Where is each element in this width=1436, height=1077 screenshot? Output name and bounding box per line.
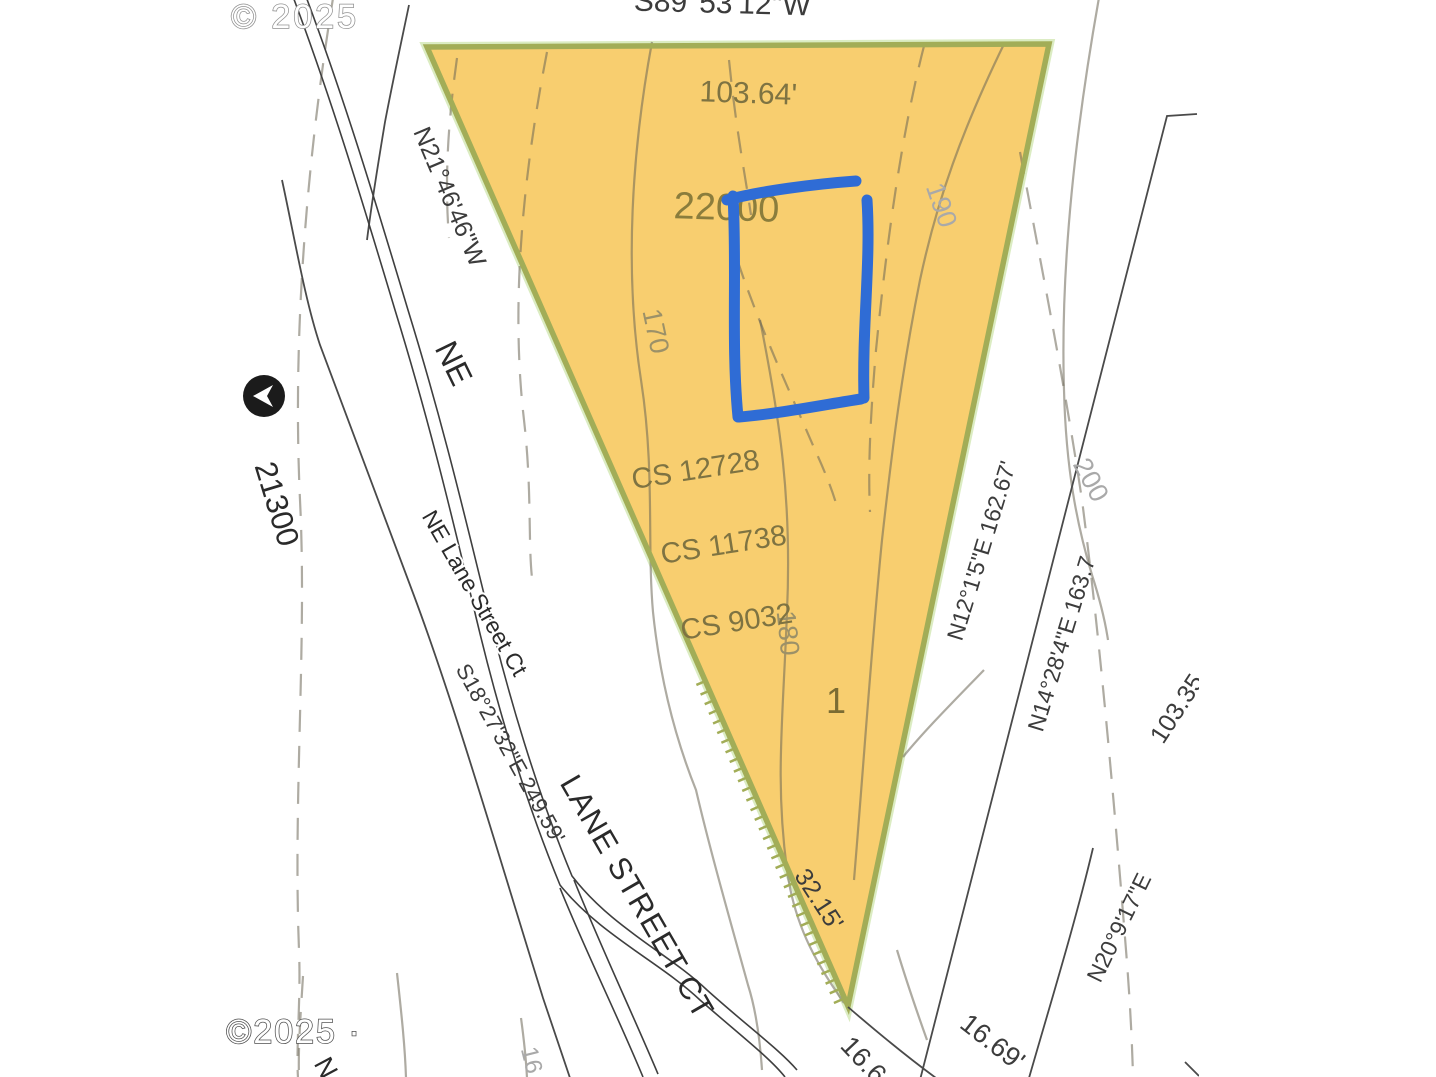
map-canvas[interactable]: S89°53'12"W 103.64' 22000 190 170 180 20… [0, 0, 1436, 1077]
nw-lot-line [367, 5, 409, 240]
copyright-watermark-bottom: ©2025 · [226, 1013, 361, 1051]
corner-tick-line [1185, 1062, 1199, 1076]
dimension-label-16-69: 16.69' [955, 1008, 1031, 1076]
plat-map-screenshot: S89°53'12"W 103.64' 22000 190 170 180 20… [0, 0, 1436, 1077]
bearing-label-east-2: N14°28'4"E 163.7 [1022, 553, 1100, 734]
lot-number-label: 1 [826, 680, 846, 721]
contour-line [897, 950, 927, 1040]
road-edge-line [282, 180, 570, 1077]
street-prefix-ne: NE [428, 335, 480, 391]
se-boundary-line [1029, 848, 1093, 1077]
annotation-left-stroke [733, 196, 738, 417]
street-name-lane-street-ct: LANE STREET CT [553, 769, 721, 1025]
contour-label-16: 16 [515, 1044, 548, 1076]
contour-line-200 [1063, 0, 1108, 640]
left-arrow-marker-icon [243, 375, 285, 417]
dimension-label-top: 103.64' [699, 75, 798, 111]
street-partial-n: N [308, 1052, 344, 1077]
bearing-label-east-3: N20°9'17"E [1081, 869, 1156, 986]
contour-line [397, 973, 406, 1077]
annotation-right-stroke [864, 200, 868, 398]
map-crop-whitespace [1199, 0, 1436, 1077]
bearing-label-southwest: S18°27'32"E 249.59' [451, 659, 570, 847]
bearing-label-top: S89°53'12"W [633, 0, 811, 22]
copyright-watermark-top: © 2025 [231, 0, 359, 36]
address-block-label: 21300 [248, 458, 307, 551]
